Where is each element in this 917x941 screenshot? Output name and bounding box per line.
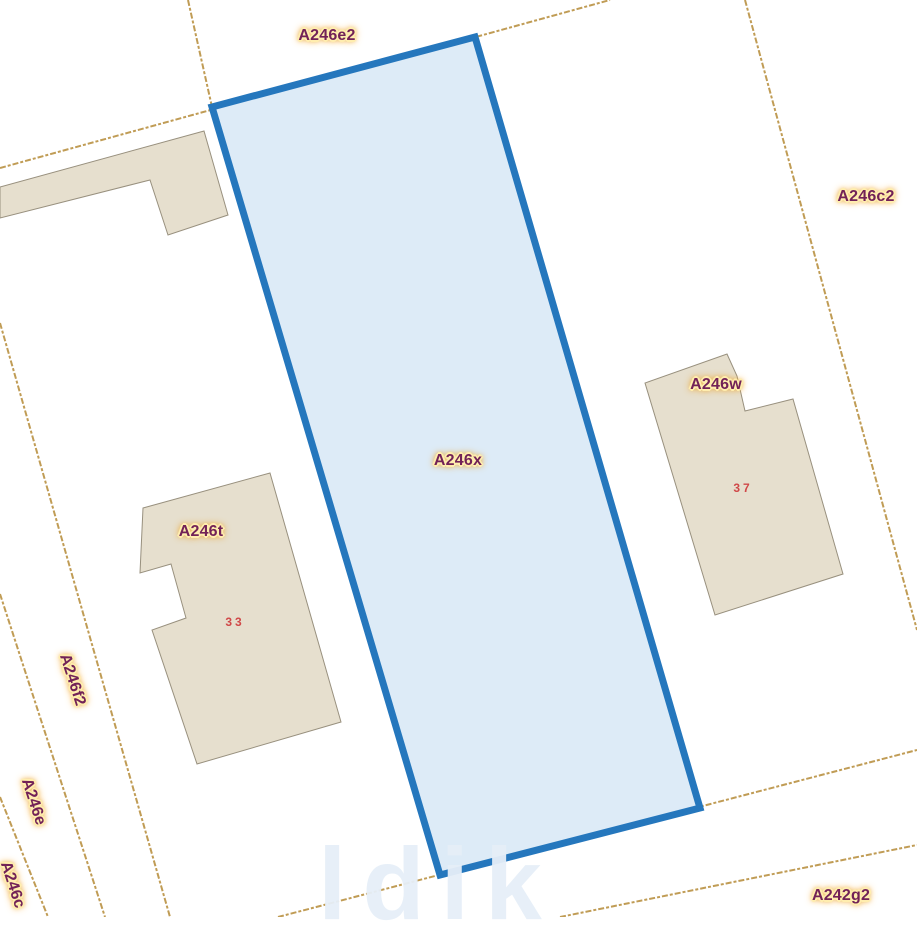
parcel-label-a246w: A246w [690, 376, 742, 394]
boundary-line-bottom-2 [560, 845, 917, 917]
parcel-label-a246x: A246x [434, 452, 482, 470]
parcel-label-a246t: A246t [179, 523, 224, 541]
boundary-line-left-1 [0, 323, 170, 917]
parcel-label-a246e2: A246e2 [298, 27, 355, 45]
house-number-33: 33 [225, 615, 244, 629]
house-number-37: 37 [733, 481, 752, 495]
parcel-label-a242g2: A242g2 [812, 887, 870, 905]
building-top-left[interactable] [0, 131, 228, 235]
boundary-line-top-corner [188, 0, 212, 107]
map-viewport[interactable]: { "map": { "type": "cadastral-parcel-map… [0, 0, 917, 917]
parcel-label-a246c2: A246c2 [837, 188, 894, 206]
